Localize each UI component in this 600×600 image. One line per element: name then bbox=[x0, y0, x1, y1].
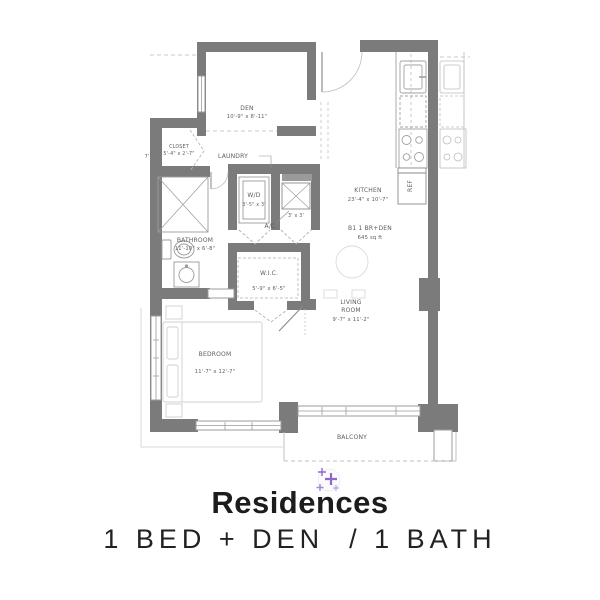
bedroom-door-icon bbox=[279, 306, 305, 336]
wall-corner-bottom-right bbox=[418, 404, 458, 432]
unit-code: B1 1 BR+DEN bbox=[348, 225, 392, 232]
nightstand-icon bbox=[166, 306, 182, 319]
closet-bifold-icon bbox=[190, 130, 204, 171]
wic-shelving bbox=[238, 258, 298, 298]
ac-dims: 3' x 3' bbox=[288, 213, 304, 219]
entry-door-icon bbox=[322, 52, 362, 92]
page-subtitle: 1 BED + DEN / 1 BATH bbox=[0, 524, 600, 555]
closet-dims: 5'-4" x 2'-7" bbox=[163, 151, 194, 157]
wall-bedroom-door-stub bbox=[303, 299, 316, 310]
stove-icon bbox=[399, 129, 427, 168]
balcony-label: BALCONY bbox=[337, 434, 367, 441]
ref-label: REF bbox=[407, 180, 414, 192]
shower-icon bbox=[158, 177, 208, 232]
neighbor-kitchen-fixtures bbox=[440, 52, 466, 168]
cased-opening bbox=[208, 289, 234, 298]
wall-right-column bbox=[419, 278, 440, 311]
bedroom-dims: 11'-7" x 12'-7" bbox=[195, 369, 236, 375]
wd-dims: 3'-5" x 3' bbox=[242, 202, 266, 208]
wall-balcony-left-column bbox=[279, 402, 298, 433]
living-dims: 9'-7" x 11'-2" bbox=[332, 317, 369, 323]
bathroom-label: BATHROOM bbox=[177, 237, 213, 244]
wall-den-right bbox=[307, 50, 316, 100]
wic-bifold-icon bbox=[255, 310, 287, 322]
wall-wic-left bbox=[228, 243, 237, 310]
dishwasher-icon bbox=[400, 96, 426, 127]
wall-laundry-divider bbox=[271, 172, 280, 230]
wic-dims: 5'-9" x 6'-5" bbox=[252, 286, 286, 292]
bathroom-dims: 11'-10" x 6'-8" bbox=[175, 246, 216, 252]
balcony-pillar bbox=[434, 430, 452, 461]
den-label: DEN bbox=[240, 105, 254, 112]
den-dims: 10'-9" x 8'-11" bbox=[227, 114, 268, 120]
wd-bifold-icon bbox=[239, 230, 270, 244]
page-title: Residences bbox=[0, 485, 600, 521]
vanity-sink-icon bbox=[174, 262, 199, 287]
wall-right-upper bbox=[428, 50, 438, 278]
wall-den-stub bbox=[277, 126, 316, 136]
bedroom-label: BEDROOM bbox=[199, 351, 232, 358]
sink-icon bbox=[400, 61, 426, 93]
room-labels: DEN 10'-9" x 8'-11" CLOSET 5'-4" x 2'-7"… bbox=[145, 105, 414, 441]
wd-label: W/D bbox=[247, 192, 260, 199]
bedroom-furniture bbox=[163, 306, 262, 417]
dim-note: 7' bbox=[145, 154, 150, 160]
unit-area: 645 sq ft bbox=[358, 235, 383, 241]
closet-label: CLOSET bbox=[169, 144, 189, 150]
living-label-1: LIVING bbox=[340, 299, 361, 306]
wall-top-right bbox=[360, 40, 438, 52]
ac-bifold-icon bbox=[281, 230, 311, 244]
ac-label: A/C bbox=[265, 223, 276, 230]
bed-icon bbox=[163, 322, 262, 402]
wall-right-lower bbox=[428, 311, 438, 408]
floorplan-page: DEN 10'-9" x 8'-11" CLOSET 5'-4" x 2'-7"… bbox=[0, 0, 600, 600]
kitchen-label: KITCHEN bbox=[354, 187, 381, 194]
shelf-hatch bbox=[282, 174, 312, 181]
hall-dashed bbox=[321, 102, 328, 162]
wic-label: W.I.C. bbox=[260, 270, 278, 277]
nightstand-icon bbox=[166, 404, 182, 417]
wall-closet-bottom bbox=[150, 166, 210, 177]
bathroom-fixtures bbox=[158, 177, 208, 287]
footer: Residences 1 BED + DEN / 1 BATH bbox=[0, 485, 600, 555]
wall-left bbox=[150, 118, 162, 290]
balcony-outline bbox=[141, 308, 456, 461]
chair-icon bbox=[324, 290, 337, 298]
wall-den-top bbox=[197, 42, 316, 52]
washer-dryer-icon bbox=[239, 177, 269, 223]
dining-table-icon bbox=[336, 246, 368, 278]
wall-laundry-left bbox=[228, 172, 237, 230]
wall-wic-top bbox=[228, 243, 310, 252]
ac-unit-icon bbox=[282, 183, 310, 209]
laundry-label: LAUNDRY bbox=[218, 153, 248, 160]
bathroom-door-icon bbox=[211, 172, 228, 189]
kitchen-dims: 23'-4" x 10'-7" bbox=[348, 197, 389, 203]
living-furniture bbox=[324, 246, 368, 298]
living-label-2: ROOM bbox=[341, 307, 361, 314]
millwork bbox=[238, 258, 298, 298]
wall-wic-bottom-left bbox=[228, 301, 254, 310]
wall-bedroom-bottom bbox=[152, 419, 198, 432]
wall-laundry-right bbox=[311, 172, 320, 230]
chair-icon bbox=[352, 290, 365, 298]
